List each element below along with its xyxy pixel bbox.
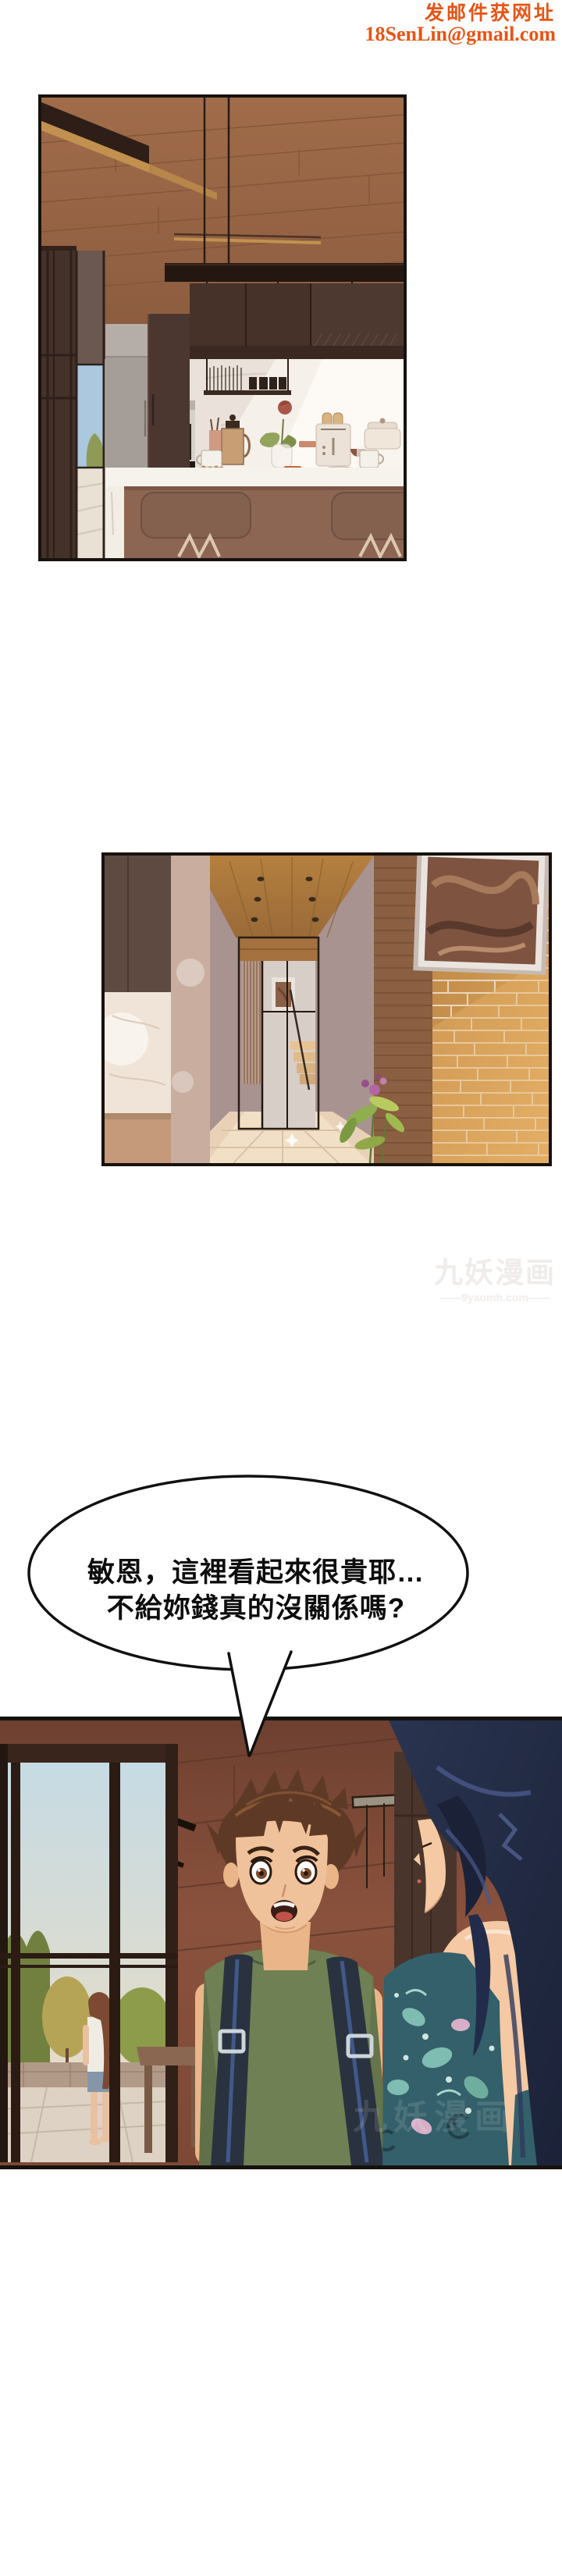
email-watermark: 发邮件获网址 18SenLin@gmail.com xyxy=(365,4,556,44)
comic-page: { "page": {"background": "#ffffff"}, "em… xyxy=(0,0,562,2576)
bar-chair xyxy=(332,493,404,539)
stone-wall xyxy=(0,2062,168,2089)
bar-chair xyxy=(141,493,251,538)
email-watermark-line2: 18SenLin@gmail.com xyxy=(365,24,556,45)
panel-kitchen xyxy=(38,94,407,561)
terrace-floor xyxy=(0,2087,168,2162)
site-watermark-title: 九妖漫画 xyxy=(426,1258,562,1289)
site-watermark-subtitle: ——9yaomh.com—— xyxy=(426,1291,562,1304)
girl-lips xyxy=(418,1880,421,1884)
boy-ear xyxy=(223,1863,239,1888)
kitchen-illustration xyxy=(41,98,404,558)
framed-picture xyxy=(413,856,549,975)
tall-cabinets xyxy=(105,314,190,468)
hallway-left-wall xyxy=(105,856,210,1163)
kitchen-island xyxy=(87,468,404,558)
speech-line-2: 不給妳錢真的沒關係嗎? xyxy=(37,1591,475,1627)
panel-hallway xyxy=(101,852,552,1166)
hallway-illustration xyxy=(105,856,549,1163)
window-door-left xyxy=(41,246,104,558)
speech-line-1: 敏恩，這裡看起來很貴耶… xyxy=(37,1555,475,1591)
scene-watermark: 九妖漫画 xyxy=(353,2089,515,2139)
upper-cabinets xyxy=(190,283,404,359)
speech-bubble-text: 敏恩，這裡看起來很貴耶… 不給妳錢真的沒關係嗎? xyxy=(37,1555,475,1627)
site-watermark: 九妖漫画 ——9yaomh.com—— xyxy=(426,1258,562,1304)
email-watermark-line1: 发邮件获网址 xyxy=(365,4,556,24)
